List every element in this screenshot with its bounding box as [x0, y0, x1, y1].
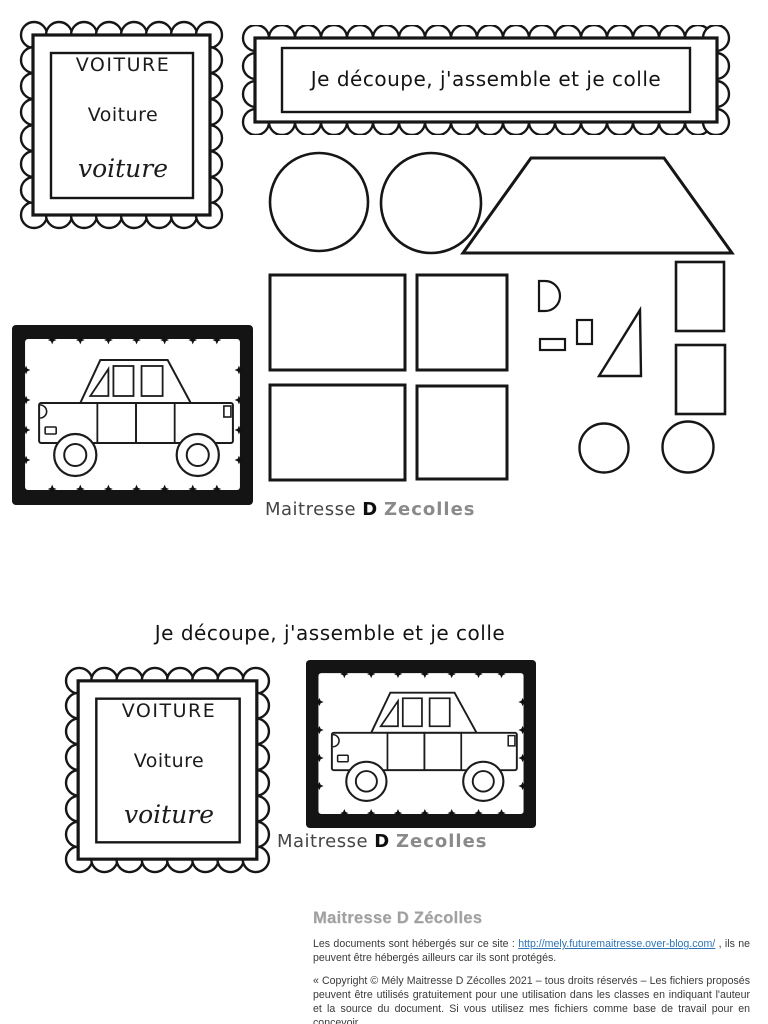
- d-shape-piece: [539, 281, 560, 311]
- word-cursive: voiture: [63, 800, 275, 829]
- small-circle-piece-2: [663, 422, 714, 473]
- small-circle-piece-1: [580, 424, 629, 473]
- word-mixed: Voiture: [18, 104, 228, 126]
- word-cursive: voiture: [18, 154, 228, 183]
- blog-link[interactable]: http://mely.futuremaitresse.over-blog.co…: [518, 938, 715, 950]
- triangle-piece: [599, 310, 641, 376]
- footer-paragraph-1: Les documents sont hébergés sur ce site …: [313, 937, 750, 965]
- car-drawing: [306, 660, 536, 828]
- watermark-signature-1: Maitresse D Zecolles: [265, 499, 476, 520]
- trapezoid-piece: [463, 158, 732, 253]
- watermark-word-1: Maitresse: [265, 499, 356, 520]
- word-caps: VOITURE: [18, 54, 228, 76]
- small-square-piece-2: [676, 345, 725, 414]
- small-rect-piece-2: [577, 320, 592, 344]
- title-banner: Je découpe, j'assemble et je colle: [240, 25, 732, 135]
- watermark-word-2: D: [362, 499, 377, 520]
- small-rect-piece-1: [540, 339, 565, 350]
- footer-credits: Maitresse D Zécolles Les documents sont …: [313, 909, 750, 1024]
- small-square-piece-1: [676, 262, 724, 331]
- watermark-word-3: Zecolles: [396, 831, 488, 852]
- rectangle-piece-2: [270, 385, 405, 480]
- circle-piece-2: [381, 153, 481, 253]
- square-piece-2: [417, 386, 507, 479]
- watermark-word-2: D: [374, 831, 389, 852]
- watermark-word-3: Zecolles: [384, 499, 476, 520]
- square-piece-1: [417, 275, 507, 370]
- voiture-word-card-2: VOITURE Voiture voiture: [63, 664, 275, 876]
- footer-paragraph-2: « Copyright © Mély Maitresse D Zécolles …: [313, 974, 750, 1024]
- circle-piece-1: [270, 153, 368, 251]
- word-mixed: Voiture: [63, 750, 275, 772]
- car-picture-1: [12, 325, 253, 505]
- footer-title: Maitresse D Zécolles: [313, 909, 750, 928]
- word-caps: VOITURE: [63, 700, 275, 722]
- rectangle-piece-1: [270, 275, 405, 370]
- car-drawing: [12, 325, 253, 505]
- section2-title: Je découpe, j'assemble et je colle: [110, 621, 550, 645]
- footer-para1-prefix: Les documents sont hébergés sur ce site …: [313, 938, 518, 950]
- watermark-signature-2: Maitresse D Zecolles: [277, 831, 488, 852]
- car-picture-2: [306, 660, 536, 828]
- watermark-word-1: Maitresse: [277, 831, 368, 852]
- banner-title: Je découpe, j'assemble et je colle: [240, 25, 732, 135]
- voiture-word-card-1: VOITURE Voiture voiture: [18, 18, 228, 232]
- worksheet-page: VOITURE Voiture voiture Je découpe, j'as…: [0, 0, 768, 1024]
